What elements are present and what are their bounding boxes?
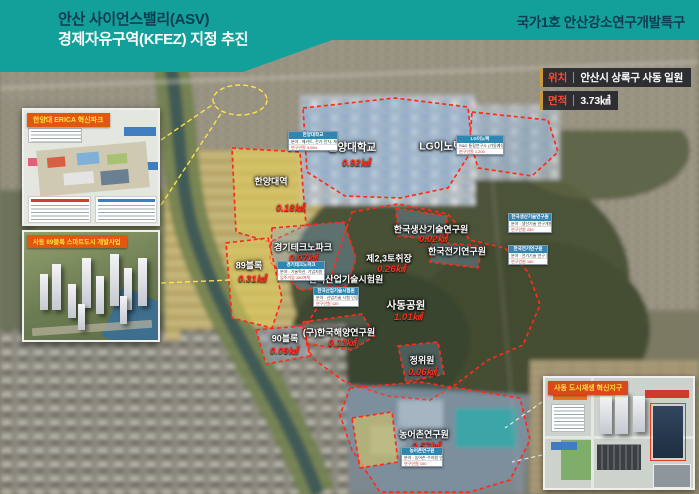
tower: [52, 264, 61, 310]
panel-header: [98, 199, 155, 202]
zone-area-kitech: 0.02㎢: [419, 231, 447, 245]
inset-block89-smartcity: 사동 89블록 스마트도시 개발사업: [22, 230, 160, 342]
callout-gtp: 경기테크노파크 분야 : 기술혁신, 기업지원 등 입주기업 150여개: [277, 261, 325, 281]
callout-title: LG이노텍: [457, 136, 503, 143]
zone-area-block90: 0.09㎢: [270, 343, 298, 357]
page-title-line2: 경제자유구역(KFEZ) 지정 추진: [58, 28, 248, 49]
callout-line: 연구인원 150: [509, 258, 547, 264]
tower: [615, 392, 628, 434]
text-lines: [31, 205, 89, 221]
callout-line: 분야 : 기술혁신, 기업지원 등: [278, 269, 324, 274]
inset-label: 사동 도시재생 혁신지구: [548, 381, 628, 395]
text-lines: [98, 205, 155, 221]
callout-line: 분야 : 농어촌·수자원 연구: [402, 455, 442, 460]
building: [77, 151, 100, 165]
tower: [120, 296, 127, 324]
tower: [96, 276, 104, 314]
panel-header: [31, 199, 89, 202]
inset-label: 사동 89블록 스마트도시 개발사업: [27, 235, 127, 248]
callout-title: 농어촌연구원: [402, 448, 442, 455]
blue-chip: [124, 127, 156, 136]
callout-title: 한국전기연구원: [509, 246, 547, 253]
zone-area-sadong-park: 1.01㎢: [394, 309, 422, 323]
callout-keri: 한국전기연구원 분야 : 전기기술 연구 등 연구인원 150: [508, 245, 548, 265]
divider: [573, 95, 574, 106]
divider: [573, 72, 574, 83]
inset-erica-park: 한양대 ERICA 혁신파크: [22, 108, 160, 226]
building: [63, 171, 94, 186]
tower: [600, 396, 612, 434]
callout-line: 연구인원 120: [314, 300, 358, 306]
zone-area-hanyang-station: 0.18㎢: [276, 200, 304, 214]
info-box: 위치 안산시 상록구 사동 일원 면적 3.73㎢: [540, 68, 691, 114]
red-chip: [645, 390, 689, 398]
tower: [68, 284, 76, 318]
building: [100, 169, 129, 185]
callout-hanyang-univ: 한양대학교 분야 : 메카트, 전기·전자, 재료 등 연구인원 3,084: [288, 131, 338, 151]
zone-area-hanyang-univ: 0.92㎢: [342, 155, 370, 169]
zone-area-block89: 0.31㎢: [238, 271, 266, 285]
info-row-area: 면적 3.73㎢: [540, 91, 618, 110]
header-right-title: 국가1호 안산강소연구개발특구: [517, 11, 685, 31]
text-lines: [31, 131, 81, 142]
glass-building: [653, 406, 683, 458]
text-panel: [95, 196, 157, 223]
callout-ktl: 한국산업기술시험원 분야 : 산업기술 시험·인증 연구인원 120: [313, 287, 359, 307]
mini-table: [28, 128, 82, 143]
callout-title: 한양대학교: [289, 132, 337, 139]
zone-label-keri: 한국전기연구원: [428, 245, 486, 258]
inset-label: 한양대 ERICA 혁신파크: [27, 113, 110, 127]
tower: [78, 304, 85, 330]
callout-line: R&D 통합연구소 (가동예정): [457, 143, 503, 148]
text-panel: [28, 196, 91, 223]
callout-title: 한국산업기술시험원: [314, 288, 358, 295]
text-panel: [551, 404, 585, 432]
callout-title: 경기테크노파크: [278, 262, 324, 269]
tower: [82, 258, 91, 308]
callout-line: 분야 : 생산기술 연구개발 등: [509, 221, 551, 226]
zone-area-old-kordi: 0.11㎢: [328, 335, 355, 349]
callout-line: 분야 : 산업기술 시험·인증: [314, 295, 358, 300]
callout-title: 한국생산기술연구원: [509, 214, 551, 221]
info-label: 위치: [548, 70, 567, 85]
callout-line: 연구인원 3,084: [289, 144, 337, 150]
info-label: 면적: [548, 93, 567, 108]
info-value: 3.73㎢: [580, 93, 610, 108]
zone-label-hanyang-station: 한양대역: [254, 175, 287, 188]
callout-line: 입주기업 150여개: [278, 274, 324, 280]
info-row-location: 위치 안산시 상록구 사동 일원: [540, 68, 691, 87]
callout-line: 분야 : 메카트, 전기·전자, 재료 등: [289, 139, 337, 144]
callout-line: 분야 : 전기기술 연구 등: [509, 253, 547, 258]
building: [107, 153, 128, 165]
inset-sadong-regeneration: 사동 도시재생 혁신지구: [543, 376, 695, 490]
callout-rural-research: 농어촌연구원 분야 : 농어촌·수자원 연구 연구인원 100: [401, 447, 443, 467]
tower: [110, 254, 119, 306]
callout-line: 연구인원 1,200: [457, 148, 503, 154]
blue-chip: [551, 442, 577, 450]
text-lines: [554, 407, 584, 431]
building: [47, 156, 66, 168]
asv-kfez-poster: 한양대역 0.18㎢ 한양대학교 0.92㎢ LG이노텍 경기테크노파크 0.0…: [0, 0, 699, 494]
callout-lg-innotek: LG이노텍 R&D 통합연구소 (가동예정) 연구인원 1,200: [456, 135, 504, 155]
tower: [633, 396, 645, 432]
tower: [138, 258, 147, 306]
page-title-line1: 안산 사이언스밸리(ASV): [58, 8, 209, 29]
solar-roof-building: [597, 444, 641, 470]
zone-label-block89: 89블록: [236, 259, 263, 272]
masterplan-rendering: [36, 141, 150, 196]
zone-area-borrow-pit: 0.26㎢: [377, 261, 405, 275]
callout-line: 연구인원 230: [509, 226, 551, 232]
callout-kitech: 한국생산기술연구원 분야 : 생산기술 연구개발 등 연구인원 230: [508, 213, 552, 233]
info-value: 안산시 상록구 사동 일원: [580, 70, 683, 85]
zone-area-jeongwiwon: 0.06㎢: [408, 364, 436, 378]
photo-thumbnail: [653, 464, 691, 488]
callout-line: 연구인원 100: [402, 460, 442, 466]
tower: [40, 274, 48, 310]
